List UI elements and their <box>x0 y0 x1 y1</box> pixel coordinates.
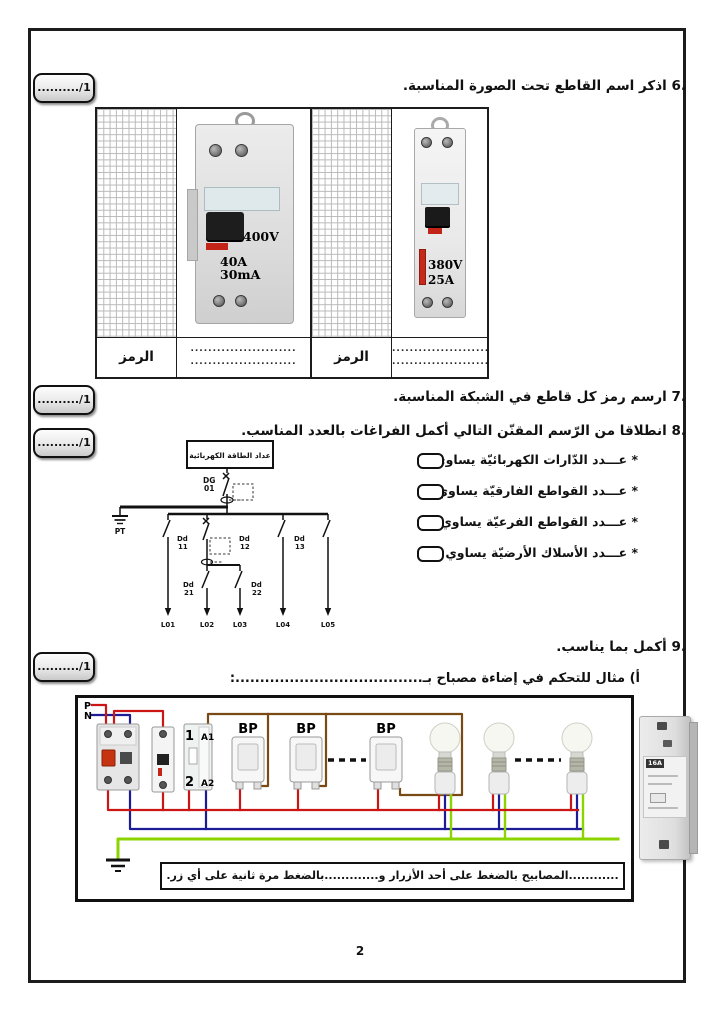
q8-bullet-branch: * عـــدد القواطع الفرعيّة يساوي <box>440 514 638 529</box>
q6-left-symbol-label: الرمز <box>97 337 177 377</box>
screw-terminal <box>421 137 432 148</box>
indicator-window <box>204 187 280 211</box>
red-stripe <box>419 249 426 285</box>
bp2-label: BP <box>296 722 315 737</box>
q8-bullet-differential: * عـــدد القواطع الفارقيّة يساوي <box>437 483 638 498</box>
q6-left-symbol-draw-area[interactable] <box>97 109 177 337</box>
trip-indicator <box>428 228 442 234</box>
screw-terminal <box>209 144 222 157</box>
breaker-toggle[interactable] <box>425 207 450 226</box>
question-7: 7. ارسم رمز كل قاطع في الشبكة المناسبة. <box>393 389 686 405</box>
output-l02: L02 <box>200 621 214 629</box>
meter-label: عداد الطاقة الكهربائية <box>189 451 271 460</box>
q8-bullet-earth: * عـــدد الأسلاك الأرضيّة يساوي <box>445 545 638 560</box>
screw-terminal <box>235 144 248 157</box>
output-l01: L01 <box>161 621 175 629</box>
dd12-number: 12 <box>240 543 250 551</box>
q9-fill-blank-strip[interactable]: ............المصابيح بالضغط على أحد الأز… <box>160 862 625 890</box>
dots-line: ........................ <box>177 356 310 369</box>
lamp-3 <box>562 723 592 794</box>
q8-answer-box-differential[interactable] <box>417 484 444 500</box>
push-button-bp2[interactable] <box>290 737 322 789</box>
bp1-label: BP <box>238 722 257 737</box>
screw-terminal <box>442 297 453 308</box>
q6-right-symbol-label: الرمز <box>312 337 392 377</box>
q6-left-device-photo: 400V 40A 30mA <box>177 109 310 337</box>
sensitivity-label: 30mA <box>220 267 260 282</box>
neutral-wire <box>92 715 130 724</box>
screw-terminal <box>213 295 225 307</box>
breaker-toggle[interactable] <box>206 212 244 240</box>
relay-terminal-a2: A2 <box>201 779 214 789</box>
question-6-text: اذكر اسم القاطع تحت الصورة المناسبة. <box>403 78 667 94</box>
dd13-number: 13 <box>295 543 305 551</box>
question-6-number: 6. <box>671 78 686 94</box>
module-label-area: 16A <box>643 756 687 818</box>
dd11-label: Dd <box>177 535 188 543</box>
branch5-switch-blade <box>323 520 330 537</box>
dd11-switch-blade <box>163 520 170 537</box>
breaker-toggle[interactable] <box>157 754 169 765</box>
question-6: 6. اذكر اسم القاطع تحت الصورة المناسبة. <box>403 78 686 94</box>
dd12-differential-box <box>210 538 230 554</box>
arrow-l02 <box>204 608 210 616</box>
output-l05: L05 <box>321 621 335 629</box>
dd22-number: 22 <box>252 589 262 597</box>
dots-line: ........................ <box>392 356 487 369</box>
dd22-label: Dd <box>251 581 262 589</box>
dd21-switch-blade <box>202 571 209 588</box>
module-screw <box>657 722 667 730</box>
lamp-1 <box>430 723 460 794</box>
question-9-number: 9. <box>671 639 686 655</box>
module-side <box>689 722 698 854</box>
module-switch <box>650 793 666 803</box>
dots-line: ........................ <box>392 343 487 356</box>
score-field-q7[interactable]: ........../1 <box>33 385 95 415</box>
voltage-label: 380V <box>428 258 462 272</box>
question-7-text: ارسم رمز كل قاطع في الشبكة المناسبة. <box>393 389 667 405</box>
q6-left-answer-dots[interactable]: ........................ ...............… <box>177 337 310 377</box>
relay-terminal-a1: A1 <box>201 733 214 743</box>
page-number: 2 <box>0 944 720 958</box>
voltage-label: 400V <box>243 229 279 244</box>
lamp-2 <box>484 723 514 794</box>
dd21-number: 21 <box>184 589 194 597</box>
dg-differential-box <box>233 484 253 500</box>
score-field-q9[interactable]: ........../1 <box>33 652 95 682</box>
dg-switch-blade <box>223 478 229 496</box>
current-label: 25A <box>428 273 454 287</box>
bp3-label: BP <box>376 722 395 737</box>
earth-wire <box>118 839 618 860</box>
q6-right-device-photo: 380V 25A <box>392 109 487 337</box>
dd11-number: 11 <box>178 543 188 551</box>
question-9-text: أكمل بما يناسب. <box>556 639 667 655</box>
module-rating-label: 16A <box>646 759 664 768</box>
score-field-q8[interactable]: ........../1 <box>33 428 95 458</box>
output-l03: L03 <box>233 621 247 629</box>
dg-number: 01 <box>204 484 214 493</box>
q6-right-symbol-draw-area[interactable] <box>312 109 392 337</box>
q9-sub-a-fill-blank[interactable]: أ) مثال للتحكم في إضاءة مصباح بـ........… <box>230 671 640 686</box>
rccb-toggle[interactable] <box>102 750 115 766</box>
q8-answer-box-branch[interactable] <box>417 515 444 531</box>
q8-scheme-diagram: عداد الطاقة الكهربائية DG 01 PT Dd 11 Dd… <box>100 436 350 632</box>
score-field-q6[interactable]: ........../1 <box>33 73 95 103</box>
dd21-label: Dd <box>183 581 194 589</box>
q6-table-right: 380V 25A الرمز ........................ … <box>310 107 489 379</box>
earth-icon <box>106 860 130 871</box>
relay-terminal-2: 2 <box>185 775 194 790</box>
q8-answer-box-circuits[interactable] <box>417 453 444 469</box>
arrow-l04 <box>280 608 286 616</box>
differential-breaker-photo <box>97 724 139 790</box>
screw-terminal <box>442 137 453 148</box>
relay-lever[interactable] <box>189 748 197 764</box>
trip-indicator <box>206 243 228 250</box>
arrow-l03 <box>237 608 243 616</box>
indicator-window <box>421 183 459 205</box>
small-breaker-photo <box>152 727 174 792</box>
arrow-l05 <box>325 608 331 616</box>
arrow-l01 <box>165 608 171 616</box>
dots-line: ........................ <box>177 343 310 356</box>
dd13-label: Dd <box>294 535 305 543</box>
dd12-label: Dd <box>239 535 250 543</box>
question-7-number: 7. <box>671 389 686 405</box>
neutral-label: N <box>84 711 92 722</box>
relay-module-photo: 16A <box>639 712 697 862</box>
din-clip <box>187 189 198 261</box>
q8-bullet-circuits: * عـــدد الدّارات الكهربائيّة يساوي <box>434 452 638 467</box>
relay-terminal-1: 1 <box>185 729 194 744</box>
q6-right-answer-dots[interactable]: ........................ ...............… <box>392 337 487 377</box>
dd22-switch-blade <box>235 571 242 588</box>
q8-answer-box-earth[interactable] <box>417 546 444 562</box>
dd12-switch-blade <box>203 523 209 540</box>
screw-terminal <box>422 297 433 308</box>
earth-label: PT <box>115 527 126 536</box>
output-l04: L04 <box>276 621 290 629</box>
question-8-number: 8. <box>671 423 686 439</box>
screw-terminal <box>235 295 247 307</box>
module-screw <box>659 840 669 849</box>
push-button-bp1[interactable] <box>232 737 264 789</box>
dd13-switch-blade <box>278 520 285 537</box>
question-9: 9. أكمل بما يناسب. <box>556 639 686 655</box>
q6-table-left: 400V 40A 30mA الرمز ....................… <box>95 107 312 379</box>
module-screw <box>663 740 672 747</box>
push-button-bp3[interactable] <box>370 737 402 789</box>
